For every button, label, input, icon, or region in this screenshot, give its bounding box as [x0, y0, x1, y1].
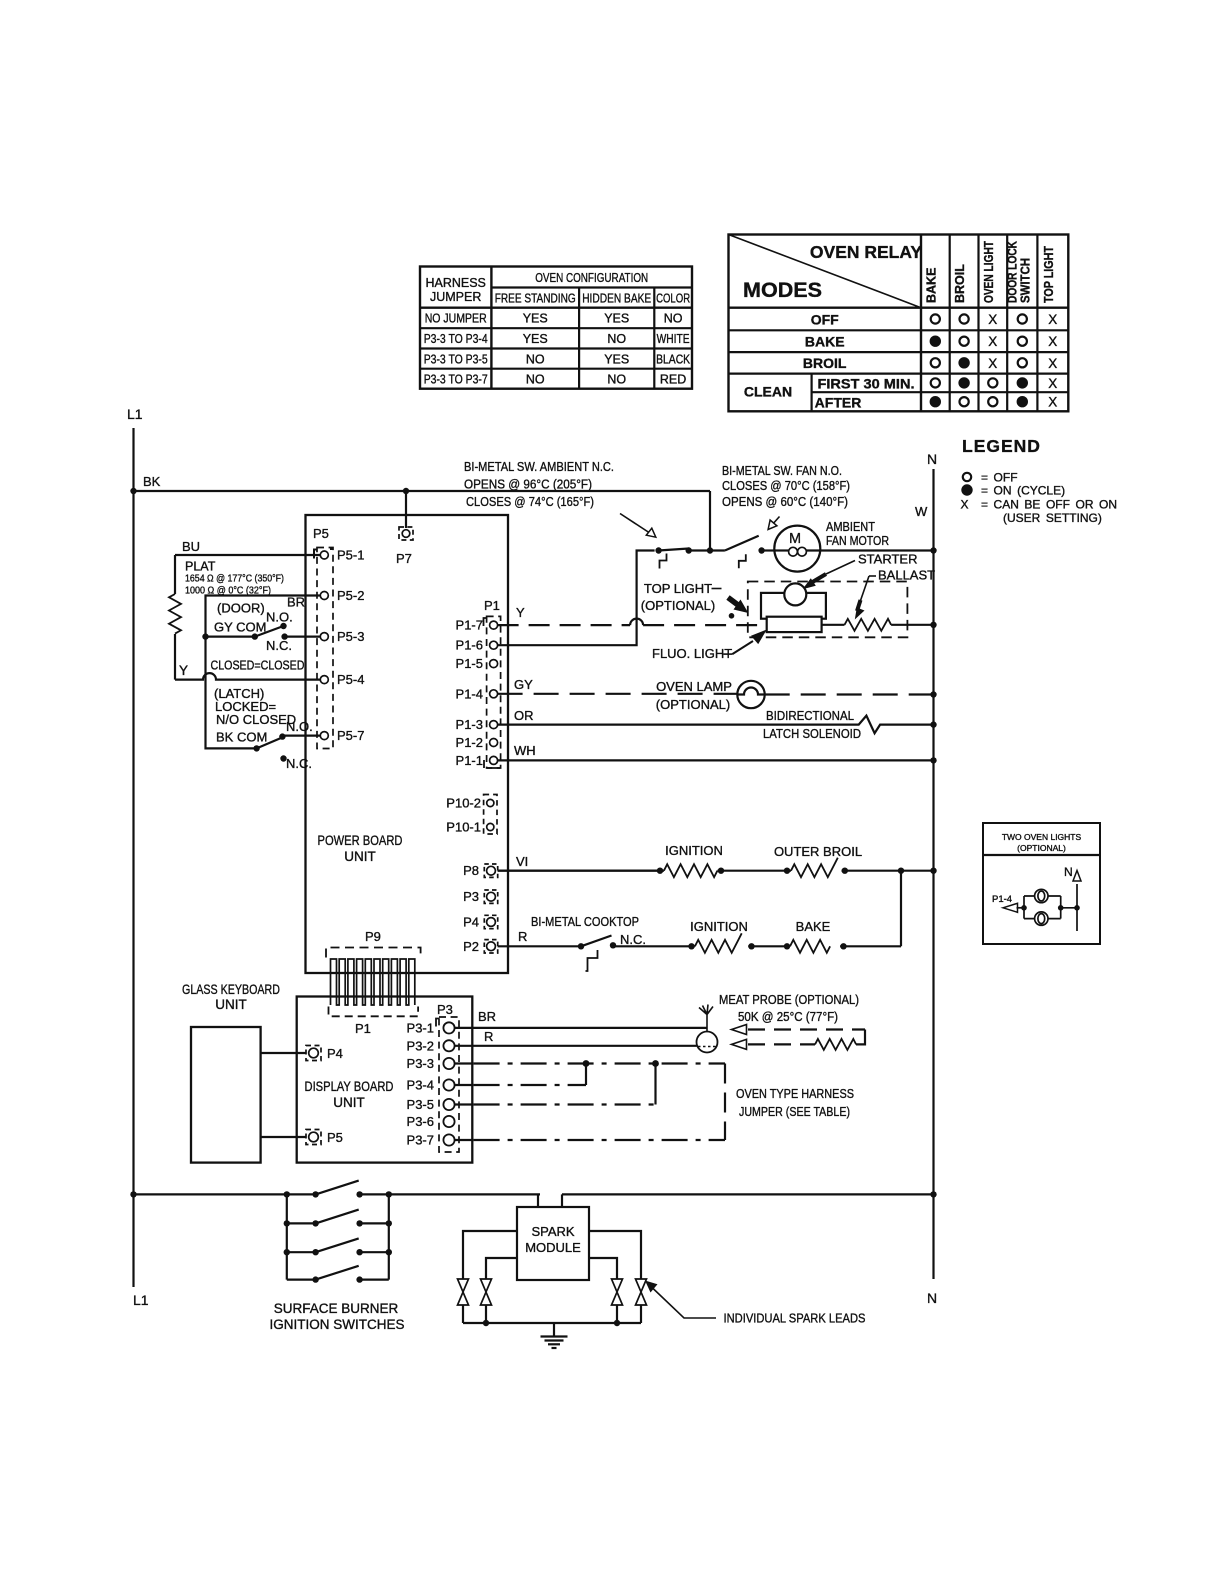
svg-text:OPENS @ 96°C (205°F): OPENS @ 96°C (205°F) — [464, 477, 592, 492]
svg-text:RED: RED — [660, 373, 686, 387]
svg-text:BAKE: BAKE — [796, 919, 831, 934]
svg-text:TOP LIGHT: TOP LIGHT — [644, 581, 712, 596]
svg-text:BROIL: BROIL — [953, 264, 967, 303]
svg-text:WH: WH — [514, 743, 536, 758]
svg-text:P5-3: P5-3 — [337, 629, 364, 644]
svg-text:UNIT: UNIT — [215, 997, 247, 1012]
svg-text:COLOR: COLOR — [656, 292, 690, 306]
svg-text:P3-7: P3-7 — [407, 1133, 434, 1148]
svg-text:N: N — [927, 451, 937, 467]
svg-text:N.C.: N.C. — [286, 756, 312, 771]
svg-text:GY COM: GY COM — [214, 620, 267, 635]
svg-text:P3-3 TO P3-7: P3-3 TO P3-7 — [424, 373, 488, 387]
svg-text:X: X — [1048, 395, 1057, 410]
svg-text:MODES: MODES — [743, 279, 822, 302]
svg-text:P1: P1 — [484, 598, 500, 613]
svg-text:BI-METAL COOKTOP: BI-METAL COOKTOP — [531, 914, 639, 929]
svg-text:P5-7: P5-7 — [337, 728, 364, 743]
svg-text:L1: L1 — [127, 406, 143, 422]
svg-text:FIRST 30 MIN.: FIRST 30 MIN. — [818, 376, 915, 392]
svg-text:P1-4: P1-4 — [456, 687, 483, 702]
svg-text:W: W — [915, 504, 928, 519]
svg-text:N.C.: N.C. — [620, 932, 646, 947]
svg-text:NO: NO — [664, 312, 683, 326]
svg-text:P3-3: P3-3 — [407, 1056, 434, 1071]
svg-text:POWER BOARD: POWER BOARD — [318, 833, 403, 848]
svg-text:X: X — [1048, 312, 1057, 327]
svg-text:P5-1: P5-1 — [337, 548, 364, 563]
svg-text:DOOR LOCK: DOOR LOCK — [1006, 241, 1020, 303]
svg-text:OFF: OFF — [811, 312, 839, 328]
svg-text:NO: NO — [526, 373, 545, 387]
svg-text:P5: P5 — [327, 1130, 343, 1145]
svg-text:P1: P1 — [355, 1021, 371, 1036]
svg-text:BK COM: BK COM — [216, 730, 267, 745]
svg-text:BLACK: BLACK — [656, 353, 691, 367]
svg-text:N: N — [1064, 865, 1073, 879]
svg-text:OVEN RELAY: OVEN RELAY — [810, 242, 922, 262]
svg-text:CLOSED=CLOSED: CLOSED=CLOSED — [211, 658, 305, 673]
svg-text:BR: BR — [287, 595, 305, 610]
svg-text:JUMPER (SEE TABLE): JUMPER (SEE TABLE) — [739, 1104, 850, 1119]
svg-text:P3-5: P3-5 — [407, 1097, 434, 1112]
svg-text:BK: BK — [143, 474, 161, 489]
svg-text:P3-4: P3-4 — [407, 1078, 434, 1093]
svg-text:= ON (CYCLE): = ON (CYCLE) — [981, 484, 1065, 498]
svg-text:50K @ 25°C (77°F): 50K @ 25°C (77°F) — [738, 1009, 838, 1024]
svg-text:M: M — [789, 531, 801, 547]
svg-text:P3-3 TO P3-4: P3-3 TO P3-4 — [424, 332, 488, 346]
svg-text:HARNESS: HARNESS — [425, 276, 485, 290]
svg-text:GLASS KEYBOARD: GLASS KEYBOARD — [182, 982, 280, 997]
svg-text:DISPLAY BOARD: DISPLAY BOARD — [305, 1079, 394, 1094]
svg-text:IGNITION SWITCHES: IGNITION SWITCHES — [270, 1317, 405, 1332]
svg-text:X: X — [988, 356, 997, 371]
svg-text:P3-2: P3-2 — [407, 1038, 434, 1053]
svg-text:P3-3 TO P3-5: P3-3 TO P3-5 — [424, 353, 488, 367]
svg-text:BR: BR — [478, 1009, 496, 1024]
svg-text:P8: P8 — [463, 863, 479, 878]
svg-text:UNIT: UNIT — [333, 1095, 365, 1110]
svg-text:P10-2: P10-2 — [446, 796, 481, 811]
svg-text:SURFACE BURNER: SURFACE BURNER — [274, 1301, 399, 1316]
svg-text:CLOSES @ 70°C (158°F): CLOSES @ 70°C (158°F) — [722, 478, 850, 493]
svg-text:P5: P5 — [313, 526, 329, 541]
svg-text:BI-METAL SW. FAN N.O.: BI-METAL SW. FAN N.O. — [722, 463, 842, 478]
svg-text:FREE STANDING: FREE STANDING — [495, 292, 576, 306]
svg-text:P4: P4 — [463, 915, 479, 930]
svg-text:OR: OR — [514, 708, 534, 723]
svg-text:P1-2: P1-2 — [456, 735, 483, 750]
svg-text:GY: GY — [514, 677, 533, 692]
svg-text:STARTER: STARTER — [858, 552, 917, 567]
svg-text:SWITCH: SWITCH — [1019, 258, 1033, 303]
svg-text:OVEN CONFIGURATION: OVEN CONFIGURATION — [535, 271, 648, 285]
svg-text:Y: Y — [516, 605, 525, 620]
svg-text:CLEAN: CLEAN — [744, 384, 792, 400]
svg-text:PLAT: PLAT — [185, 560, 216, 574]
svg-text:SPARK: SPARK — [531, 1224, 574, 1239]
svg-text:NO: NO — [526, 353, 545, 367]
svg-text:NO: NO — [607, 332, 626, 346]
svg-text:CLOSES @ 74°C (165°F): CLOSES @ 74°C (165°F) — [466, 494, 594, 509]
svg-text:IGNITION: IGNITION — [665, 843, 723, 858]
svg-text:AMBIENT: AMBIENT — [826, 519, 875, 534]
svg-text:OVEN LIGHT: OVEN LIGHT — [982, 241, 996, 303]
svg-text:YES: YES — [523, 332, 548, 346]
svg-text:IGNITION: IGNITION — [690, 919, 748, 934]
svg-text:TWO OVEN LIGHTS: TWO OVEN LIGHTS — [1002, 832, 1082, 842]
svg-text:BU: BU — [182, 539, 200, 554]
svg-text:X: X — [1048, 376, 1057, 391]
svg-text:(OPTIONAL): (OPTIONAL) — [1017, 843, 1066, 853]
svg-text:VI: VI — [516, 854, 528, 869]
svg-text:AFTER: AFTER — [815, 395, 862, 411]
svg-text:(OPTIONAL): (OPTIONAL) — [656, 697, 730, 712]
svg-text:P9: P9 — [365, 929, 381, 944]
svg-text:BAKE: BAKE — [805, 334, 845, 350]
svg-text:P3-6: P3-6 — [407, 1114, 434, 1129]
svg-text:(OPTIONAL): (OPTIONAL) — [641, 598, 715, 613]
svg-text:P10-1: P10-1 — [446, 820, 481, 835]
svg-text:N.O.: N.O. — [266, 610, 293, 625]
svg-text:N.O.: N.O. — [286, 719, 313, 734]
svg-text:BROIL: BROIL — [803, 355, 847, 371]
svg-text:OUTER BROIL: OUTER BROIL — [774, 844, 862, 859]
svg-text:X: X — [988, 312, 997, 327]
svg-text:P1-7: P1-7 — [456, 618, 483, 633]
svg-text:LEGEND: LEGEND — [962, 436, 1041, 456]
svg-text:P2: P2 — [463, 939, 479, 954]
svg-text:P7: P7 — [396, 551, 412, 566]
svg-text:NO JUMPER: NO JUMPER — [425, 312, 487, 326]
svg-text:LATCH SOLENOID: LATCH SOLENOID — [763, 726, 861, 741]
svg-text:TOP LIGHT: TOP LIGHT — [1042, 246, 1056, 303]
svg-text:X: X — [961, 498, 969, 512]
svg-text:Y: Y — [179, 663, 188, 678]
svg-text:P1-5: P1-5 — [456, 656, 483, 671]
svg-text:HIDDEN BAKE: HIDDEN BAKE — [582, 292, 651, 306]
svg-text:FAN MOTOR: FAN MOTOR — [826, 533, 889, 548]
svg-text:L1: L1 — [133, 1292, 149, 1308]
svg-text:YES: YES — [523, 312, 548, 326]
svg-text:N/O CLOSED: N/O CLOSED — [216, 712, 296, 727]
svg-text:BAKE: BAKE — [924, 268, 938, 303]
svg-text:P5-2: P5-2 — [337, 588, 364, 603]
svg-text:= OFF: = OFF — [981, 471, 1018, 485]
svg-text:JUMPER: JUMPER — [430, 290, 481, 304]
svg-text:WHITE: WHITE — [657, 332, 690, 346]
svg-text:BI-METAL SW. AMBIENT N.C.: BI-METAL SW. AMBIENT N.C. — [464, 459, 614, 474]
svg-text:R: R — [484, 1029, 493, 1044]
svg-text:INDIVIDUAL SPARK LEADS: INDIVIDUAL SPARK LEADS — [724, 1311, 866, 1326]
svg-text:MEAT PROBE (OPTIONAL): MEAT PROBE (OPTIONAL) — [719, 992, 859, 1007]
svg-text:OVEN LAMP: OVEN LAMP — [656, 679, 732, 694]
svg-text:P3-1: P3-1 — [407, 1020, 434, 1035]
svg-text:P1-1: P1-1 — [456, 753, 483, 768]
svg-text:OVEN TYPE HARNESS: OVEN TYPE HARNESS — [736, 1086, 854, 1101]
svg-text:P1-4: P1-4 — [992, 894, 1012, 905]
svg-text:N: N — [927, 1290, 937, 1306]
svg-text:N.C.: N.C. — [266, 638, 292, 653]
svg-text:X: X — [1048, 356, 1057, 371]
svg-text:(USER SETTING): (USER SETTING) — [1003, 511, 1102, 525]
svg-text:YES: YES — [604, 312, 629, 326]
svg-text:OPENS @ 60°C (140°F): OPENS @ 60°C (140°F) — [722, 494, 848, 509]
svg-text:P1-3: P1-3 — [456, 717, 483, 732]
svg-text:1654 Ω @ 177°C (350°F): 1654 Ω @ 177°C (350°F) — [185, 573, 284, 585]
svg-text:NO: NO — [607, 373, 626, 387]
svg-text:X: X — [988, 334, 997, 349]
svg-text:P3: P3 — [463, 889, 479, 904]
svg-text:MODULE: MODULE — [525, 1240, 581, 1255]
svg-text:P1-6: P1-6 — [456, 638, 483, 653]
svg-text:P3: P3 — [437, 1002, 453, 1017]
svg-text:(DOOR): (DOOR) — [217, 601, 265, 616]
svg-text:FLUO. LIGHT: FLUO. LIGHT — [652, 646, 732, 661]
svg-text:BALLAST: BALLAST — [878, 568, 935, 583]
svg-text:P5-4: P5-4 — [337, 672, 364, 687]
svg-text:UNIT: UNIT — [344, 849, 376, 864]
svg-text:YES: YES — [604, 353, 629, 367]
svg-text:P4: P4 — [327, 1046, 343, 1061]
svg-text:X: X — [1048, 334, 1057, 349]
svg-text:= CAN BE OFF OR ON: = CAN BE OFF OR ON — [981, 498, 1117, 512]
svg-text:BIDIRECTIONAL: BIDIRECTIONAL — [766, 708, 854, 723]
svg-text:R: R — [518, 929, 527, 944]
